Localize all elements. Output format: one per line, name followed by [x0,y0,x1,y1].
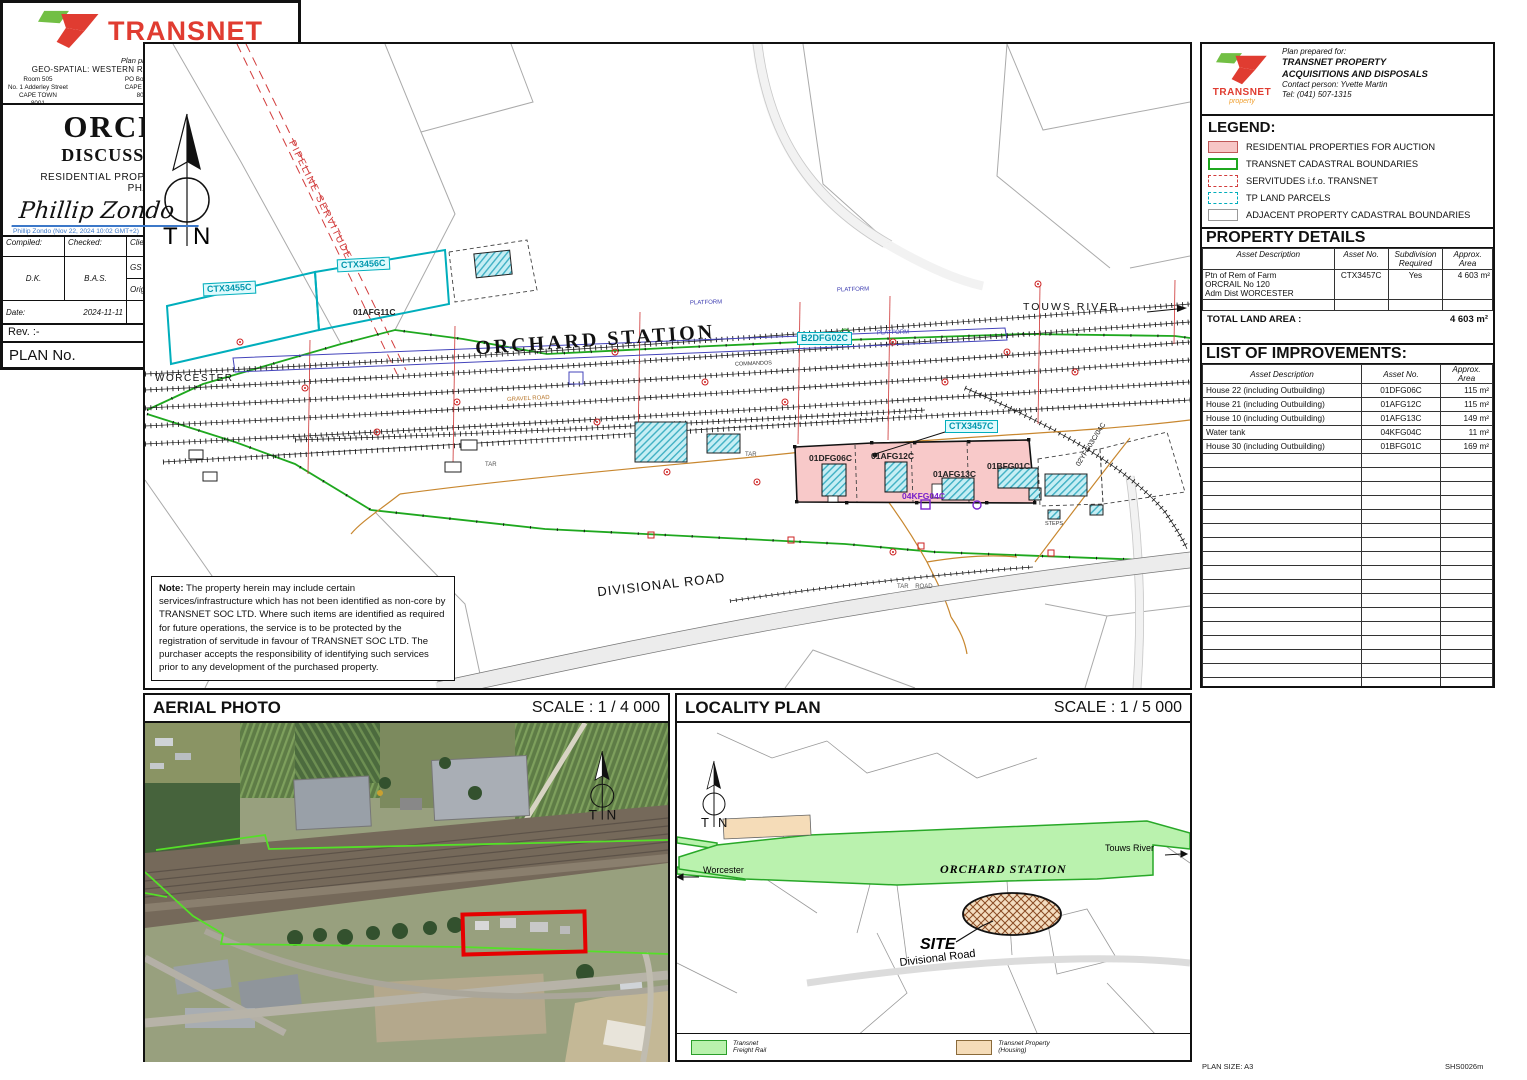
compiled-label: Compiled: [3,237,65,257]
locality-plan-panel: LOCALITY PLAN SCALE : 1 / 5 000 [675,693,1192,1062]
empty-row [1203,650,1493,664]
house-label-04kfg04c: 04KFG04C [902,492,945,501]
date-cell: Date: 2024-11-11 [3,301,127,325]
transnet-logo-icon [1216,53,1268,87]
empty-row [1203,454,1493,468]
prepared-for-dept: ACQUISITIONS AND DISPOSALS [1282,69,1489,81]
main-map-panel: .rb{fill:none;stroke:#1b1b1b;stroke-widt… [143,42,1192,690]
checked-value: B.A.S. [65,257,127,301]
legend-block: LEGEND: RESIDENTIAL PROPERTIES FOR AUCTI… [1202,114,1493,227]
tar-label: TAR [745,452,757,458]
touws-river-label: TOUWS RIVER [1023,302,1119,313]
improvement-row: House 21 (including Outbuilding)01AFG12C… [1203,398,1493,412]
property-details-title: PROPERTY DETAILS [1202,229,1493,248]
svg-text:T: T [701,815,709,830]
checked-label: Checked: [65,237,127,257]
locality-scale: SCALE : 1 / 5 000 [1054,699,1182,717]
house-label-01dfg06c: 01DFG06C [809,454,852,463]
improvement-row: House 30 (including Outbuilding)01BFG01C… [1203,440,1493,454]
aerial-scale: SCALE : 1 / 4 000 [532,699,660,717]
empty-row [1203,538,1493,552]
parcel-label-ctx3455c: CTX3455C [203,281,256,297]
empty-row [1203,482,1493,496]
legend-item-servitudes: SERVITUDES i.f.o. TRANSNET [1208,172,1487,189]
transnet-logo-icon [38,8,100,54]
note-body: The property herein may include certain … [159,583,445,673]
parcel-label-01afg11c: 01AFG11C [353,308,396,317]
legend-item-cadastral: TRANSNET CADASTRAL BOUNDARIES [1208,155,1487,172]
station-buildings [189,422,740,481]
svg-text:T: T [589,808,597,823]
locality-plan-drawing: T N ORCHARD STATION SITE Divisional Road… [677,723,1190,1036]
legend-title: LEGEND: [1208,119,1487,136]
locality-worcester-label: Worcester [703,865,744,875]
improvements-table: Asset Description Asset No. Approx. Area… [1202,364,1493,686]
legend-item-adjacent: ADJACENT PROPERTY CADASTRAL BOUNDARIES [1208,206,1487,223]
empty-row [1203,468,1493,482]
house-label-01afg13c: 01AFG13C [933,470,976,479]
prepared-for-contact: Contact person: Yvette Martin [1282,80,1489,90]
empty-row [1203,636,1493,650]
empty-row [1203,300,1493,311]
date-label: Date: [6,308,25,317]
date-value: 2024-11-11 [83,308,123,317]
signature: Phillip Zondo [11,198,201,227]
improvements-block: LIST OF IMPROVEMENTS: Asset Description … [1202,343,1493,686]
empty-row [1203,524,1493,538]
locality-legend-housing: Transnet Property (Housing) [956,1040,1050,1055]
tar-label: TAR [485,462,497,468]
empty-row [1203,510,1493,524]
worcester-label: WORCESTER [155,374,234,384]
improvements-title: LIST OF IMPROVEMENTS: [1202,345,1493,364]
servitude-swatch [1208,175,1238,187]
steps-label: STEPS [1045,522,1063,528]
empty-row [1203,496,1493,510]
house-label-01afg12c: 01AFG12C [871,452,914,461]
note-title: Note: [159,583,184,594]
divisional-road-band [437,552,1190,688]
transnet-housing-area [723,815,811,839]
property-details-block: PROPERTY DETAILS Asset Description Asset… [1202,227,1493,343]
locality-parcel-lines [677,733,1190,1036]
platform-label: PLATFORM [877,329,909,336]
plan-sheet: .rb{fill:none;stroke:#1b1b1b;stroke-widt… [0,0,1527,1080]
locality-legend: Transnet Freight Rail Transnet Property … [677,1033,1190,1060]
parcel-label-ctx3456c: CTX3456C [337,257,390,273]
locality-north-arrow: T N [701,761,727,830]
locality-legend-rail: Transnet Freight Rail [691,1040,766,1055]
aerial-photo-panel: AERIAL PHOTO SCALE : 1 / 4 000 [143,693,670,1062]
signal-marker-dots [239,283,1076,553]
locality-touws-label: Touws River [1105,843,1154,853]
plan-size-note: PLAN SIZE: A3 [1202,1062,1253,1071]
house-label-01bfg01c: 01BFG01C [987,462,1030,471]
auction-swatch [1208,141,1238,153]
prepared-for-tel: Tel: (041) 507-1315 [1282,90,1489,100]
north-arrow: T N [163,114,210,250]
empty-row [1203,664,1493,678]
empty-row [1203,566,1493,580]
svg-text:N: N [606,808,616,823]
compass-t: T [163,223,178,250]
cadastral-swatch [1208,158,1238,170]
total-land-area: TOTAL LAND AREA : 4 603 m² [1202,311,1493,328]
tar-road-label: TAR ROAD [897,584,933,590]
empty-row [1203,594,1493,608]
note-box: Note: The property herein may include ce… [151,576,455,681]
sheet-code: SHS0026m [1445,1062,1483,1071]
empty-row [1203,608,1493,622]
housing-swatch [956,1040,992,1055]
prepared-for-caption: Plan prepared for: [1282,47,1489,57]
tp-swatch [1208,192,1238,204]
legend-item-auction: RESIDENTIAL PROPERTIES FOR AUCTION [1208,138,1487,155]
property-wordmark: property [1229,98,1255,105]
improvement-row: House 22 (including Outbuilding)01DFG06C… [1203,384,1493,398]
compass-n: N [193,223,210,250]
transnet-wordmark: TRANSNET [1213,87,1271,98]
svg-text:N: N [718,815,727,830]
aerial-title: AERIAL PHOTO [153,698,281,718]
improvement-row: House 10 (including Outbuilding)01AFG13C… [1203,412,1493,426]
signal-markers [237,281,1078,556]
info-column: TRANSNET property Plan prepared for: TRA… [1200,42,1495,688]
plan-no-label: PLAN No. [9,347,76,364]
improvement-row: Water tank04KFG04C11 m² [1203,426,1493,440]
property-row: Ptn of Rem of Farm ORCRAIL No 120 Adm Di… [1203,270,1493,300]
transnet-mini-logo: TRANSNET property [1206,47,1278,111]
parcel-label-b2dfg02c: B2DFG02C [797,332,852,345]
prepared-for-org: TRANSNET PROPERTY [1282,57,1489,69]
empty-row [1203,580,1493,594]
adjacent-swatch [1208,209,1238,221]
legend-item-tp-parcels: TP LAND PARCELS [1208,189,1487,206]
prepared-for-block: TRANSNET property Plan prepared for: TRA… [1202,44,1493,114]
empty-row [1203,622,1493,636]
parcel-label-ctx3457c: CTX3457C [945,420,998,433]
freight-rail-swatch [691,1040,727,1055]
compiled-value: D.K. [3,257,65,301]
platform-label: PLATFORM [690,299,722,306]
locality-road [807,959,1190,983]
locality-title: LOCALITY PLAN [685,698,821,718]
empty-row [1203,552,1493,566]
property-details-table: Asset Description Asset No. Subdivision … [1202,248,1493,311]
empty-row [1203,678,1493,687]
locality-station-label: ORCHARD STATION [940,862,1067,876]
platform-label: PLATFORM [837,286,869,293]
aerial-photo-image: T N [145,723,668,1062]
